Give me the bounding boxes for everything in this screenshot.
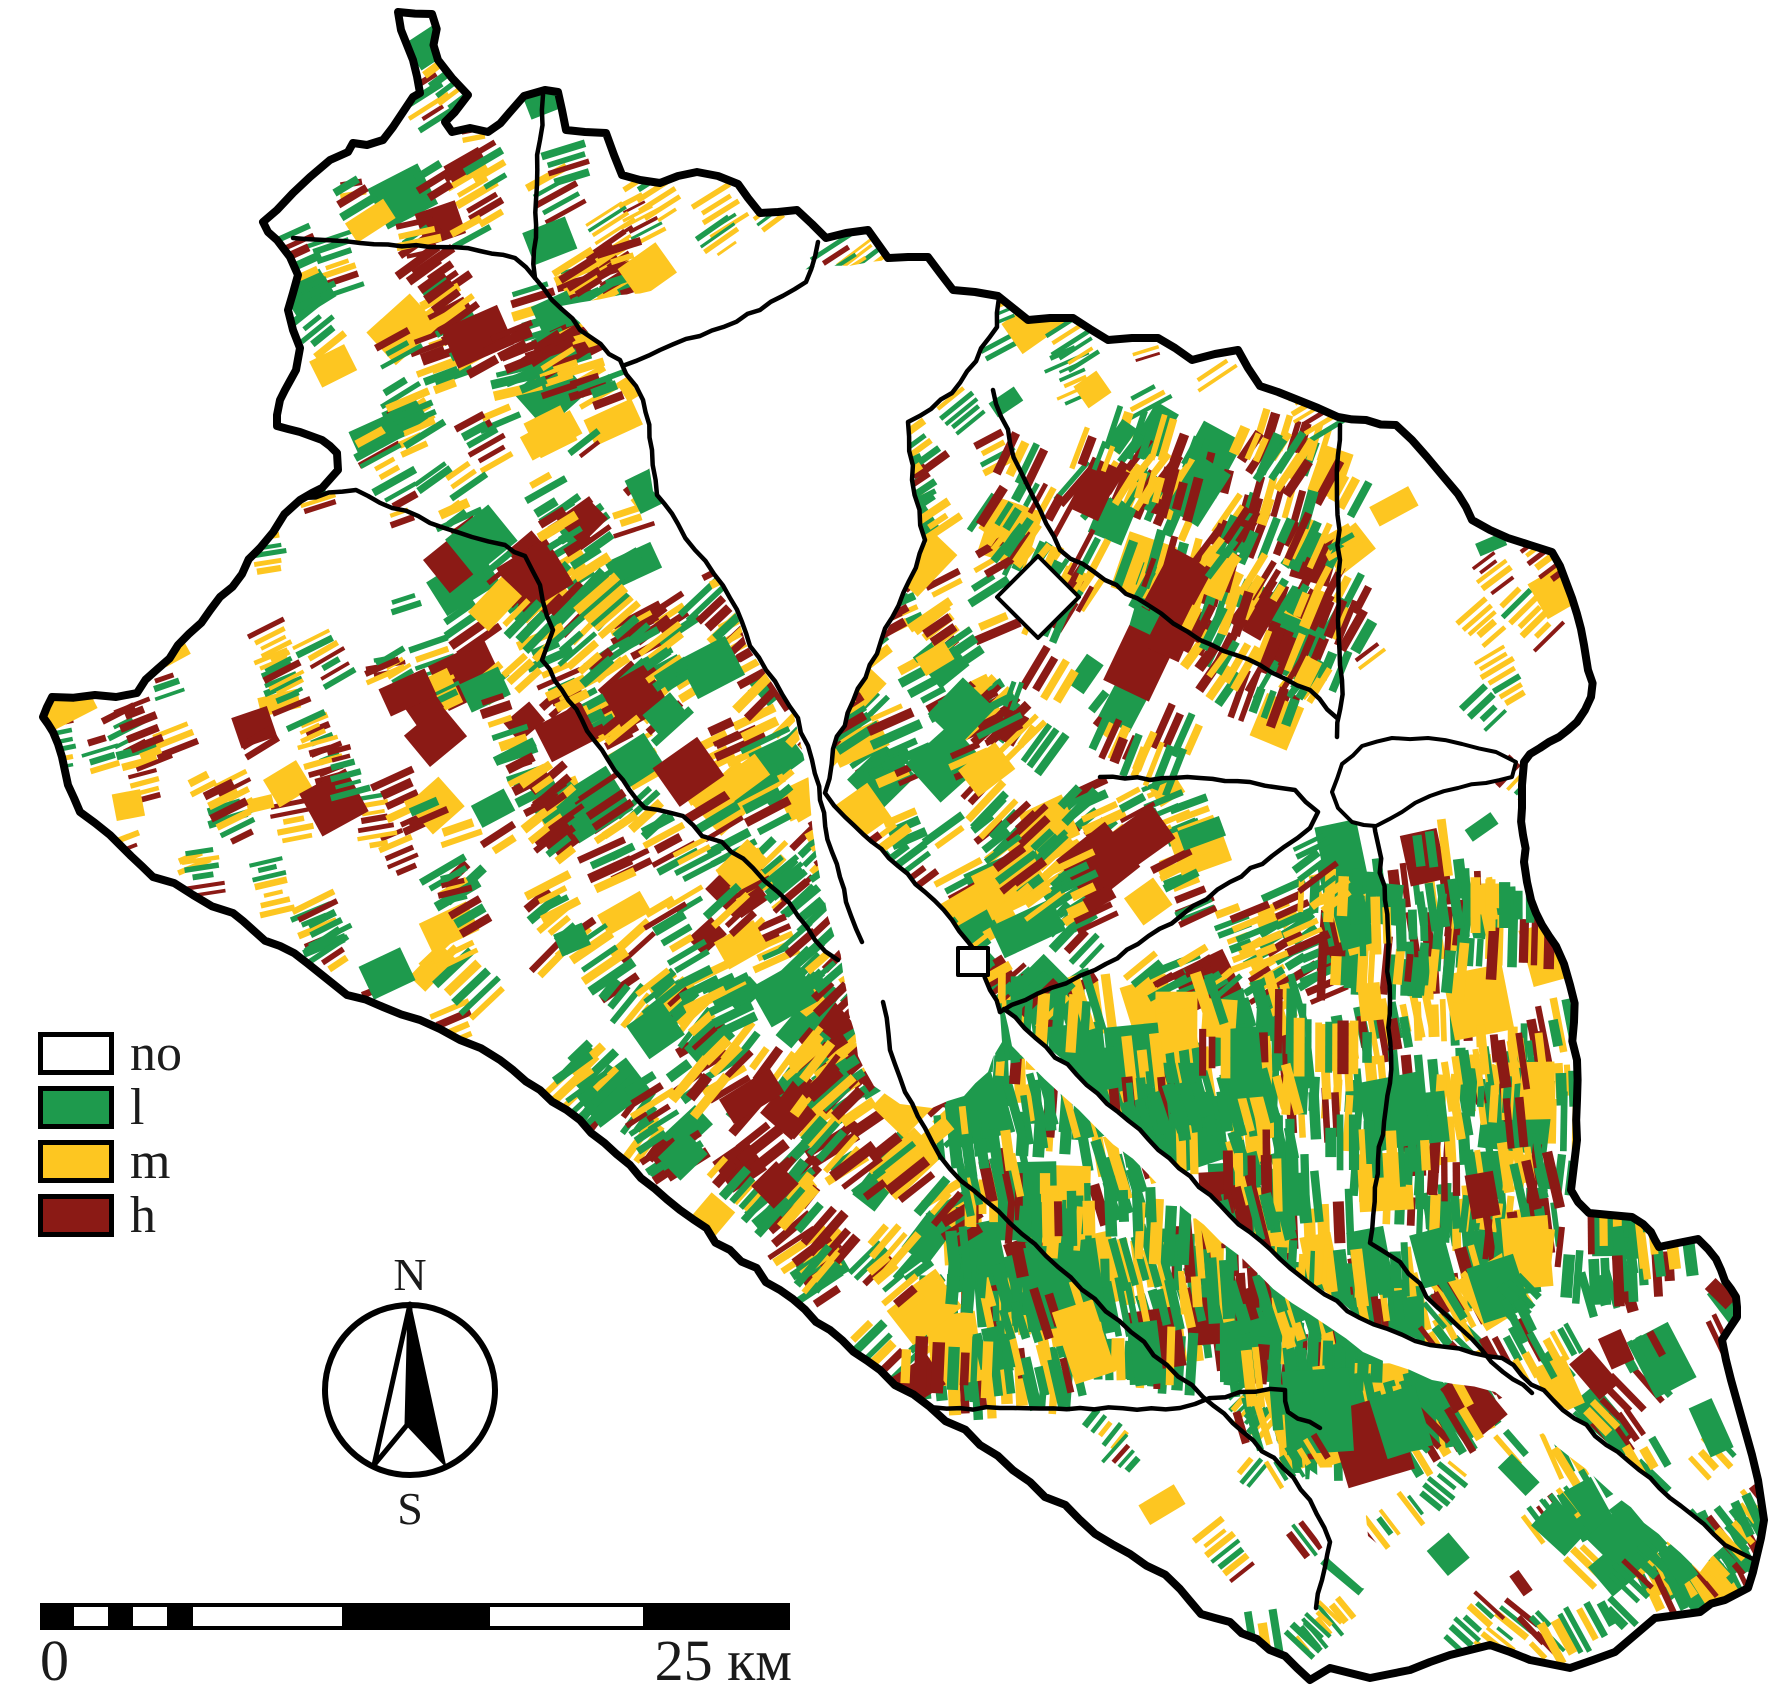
legend-item-medium: m <box>38 1140 182 1183</box>
legend-swatch-high <box>38 1194 114 1237</box>
compass-needle-east-half <box>407 1304 445 1465</box>
legend-swatch-medium <box>38 1140 114 1183</box>
legend-swatch-no <box>38 1032 114 1075</box>
enclave-square <box>958 948 988 975</box>
compass-rose: N S <box>308 1232 512 1532</box>
legend-item-no: no <box>38 1032 182 1075</box>
legend-label-high: h <box>130 1194 156 1237</box>
map-legend: no l m h <box>38 1032 182 1248</box>
legend-swatch-low <box>38 1086 114 1129</box>
compass-south-label: S <box>397 1483 423 1532</box>
scale-start-label: 0 <box>40 1628 69 1685</box>
legend-label-medium: m <box>130 1140 170 1183</box>
land-classification-map: no l m h N S 0 25 км <box>0 0 1780 1685</box>
legend-label-low: l <box>130 1086 144 1129</box>
map-canvas <box>0 0 1780 1685</box>
legend-label-no: no <box>130 1032 182 1075</box>
compass-needle-west-half <box>374 1304 410 1465</box>
legend-item-high: h <box>38 1194 182 1237</box>
compass-north-label: N <box>393 1249 426 1300</box>
legend-item-low: l <box>38 1086 182 1129</box>
scale-bar: 0 25 км <box>30 1590 870 1685</box>
scale-end-label: 25 км <box>655 1628 792 1685</box>
